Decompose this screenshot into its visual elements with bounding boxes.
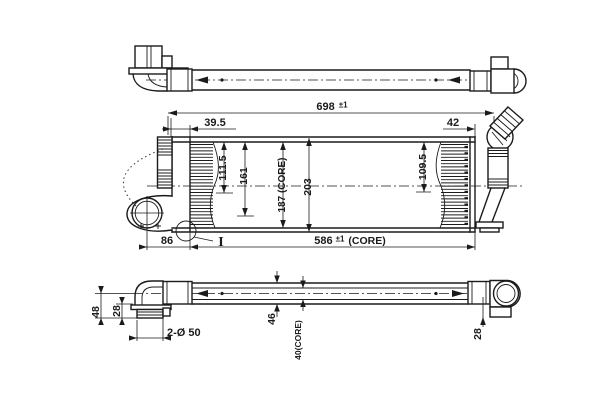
left-inlet-stub: [158, 137, 173, 188]
top-left-elbow-fitting: [129, 46, 192, 91]
dim-overall-height: 203: [302, 138, 314, 232]
dim-port-to-core-label: 86: [161, 235, 173, 247]
core-fins-left: [190, 137, 218, 232]
dim-mid-left-height-label: 161: [238, 167, 250, 185]
dim-port-diameter-label: 2-Ø 50: [167, 327, 201, 339]
bottom-view: 48 28 2-Ø 50 46 40(CORE): [90, 271, 520, 360]
dim-stub-drop-label: 28: [111, 305, 123, 317]
flow-arrow-icon: [452, 290, 464, 297]
right-angled-fitting: [476, 107, 523, 232]
dim-body-depth: 46: [266, 271, 280, 325]
dim-right-stub-drop-label: 28: [472, 328, 484, 340]
flow-arrow-icon: [196, 290, 208, 297]
dim-stub-drop: 28: [111, 297, 133, 325]
bottom-right-port-fitting: [468, 281, 520, 318]
intercooler-drawing: 698±1 39.5 42: [0, 0, 600, 400]
dim-upper-right-height: 109.5: [416, 142, 431, 192]
flow-arrow-icon: [448, 77, 460, 84]
bottom-left-elbow-fitting: [131, 281, 192, 318]
dim-overall-height-label: 203: [302, 178, 314, 196]
dim-core-depth-label: 40(CORE): [293, 320, 303, 360]
dim-core-height: 187 (CORE): [277, 142, 288, 228]
dim-upper-left-height-label: 111.5: [217, 155, 229, 180]
detail-callout-I: I: [176, 221, 224, 250]
detail-marker-label: I: [218, 235, 223, 250]
top-view: [129, 46, 526, 93]
dim-upper-right-height-label: 109.5: [417, 154, 429, 180]
technical-drawing-canvas: 698±1 39.5 42: [0, 0, 600, 400]
dim-overall-length-label: 698±1: [316, 101, 348, 114]
dim-mid-left-height: 161: [237, 142, 254, 216]
dim-core-height-label: 187 (CORE): [277, 157, 288, 212]
dim-body-depth-label: 46: [266, 313, 278, 325]
dim-drop-height-label: 48: [90, 306, 102, 318]
dim-core-depth: 40(CORE): [293, 276, 306, 360]
flow-arrow-icon: [196, 77, 208, 84]
core-fins-right: [436, 142, 468, 228]
top-right-cap-fitting: [470, 57, 526, 93]
dim-port-diameter: 2-Ø 50: [129, 318, 201, 341]
front-view: I 111.5 161: [123, 107, 524, 250]
dim-core-length-label: 586±1(CORE): [314, 235, 386, 248]
dim-left-inset-label: 39.5: [204, 117, 225, 129]
dim-right-inset-label: 42: [447, 117, 459, 129]
dim-upper-left-height: 111.5: [216, 142, 233, 193]
